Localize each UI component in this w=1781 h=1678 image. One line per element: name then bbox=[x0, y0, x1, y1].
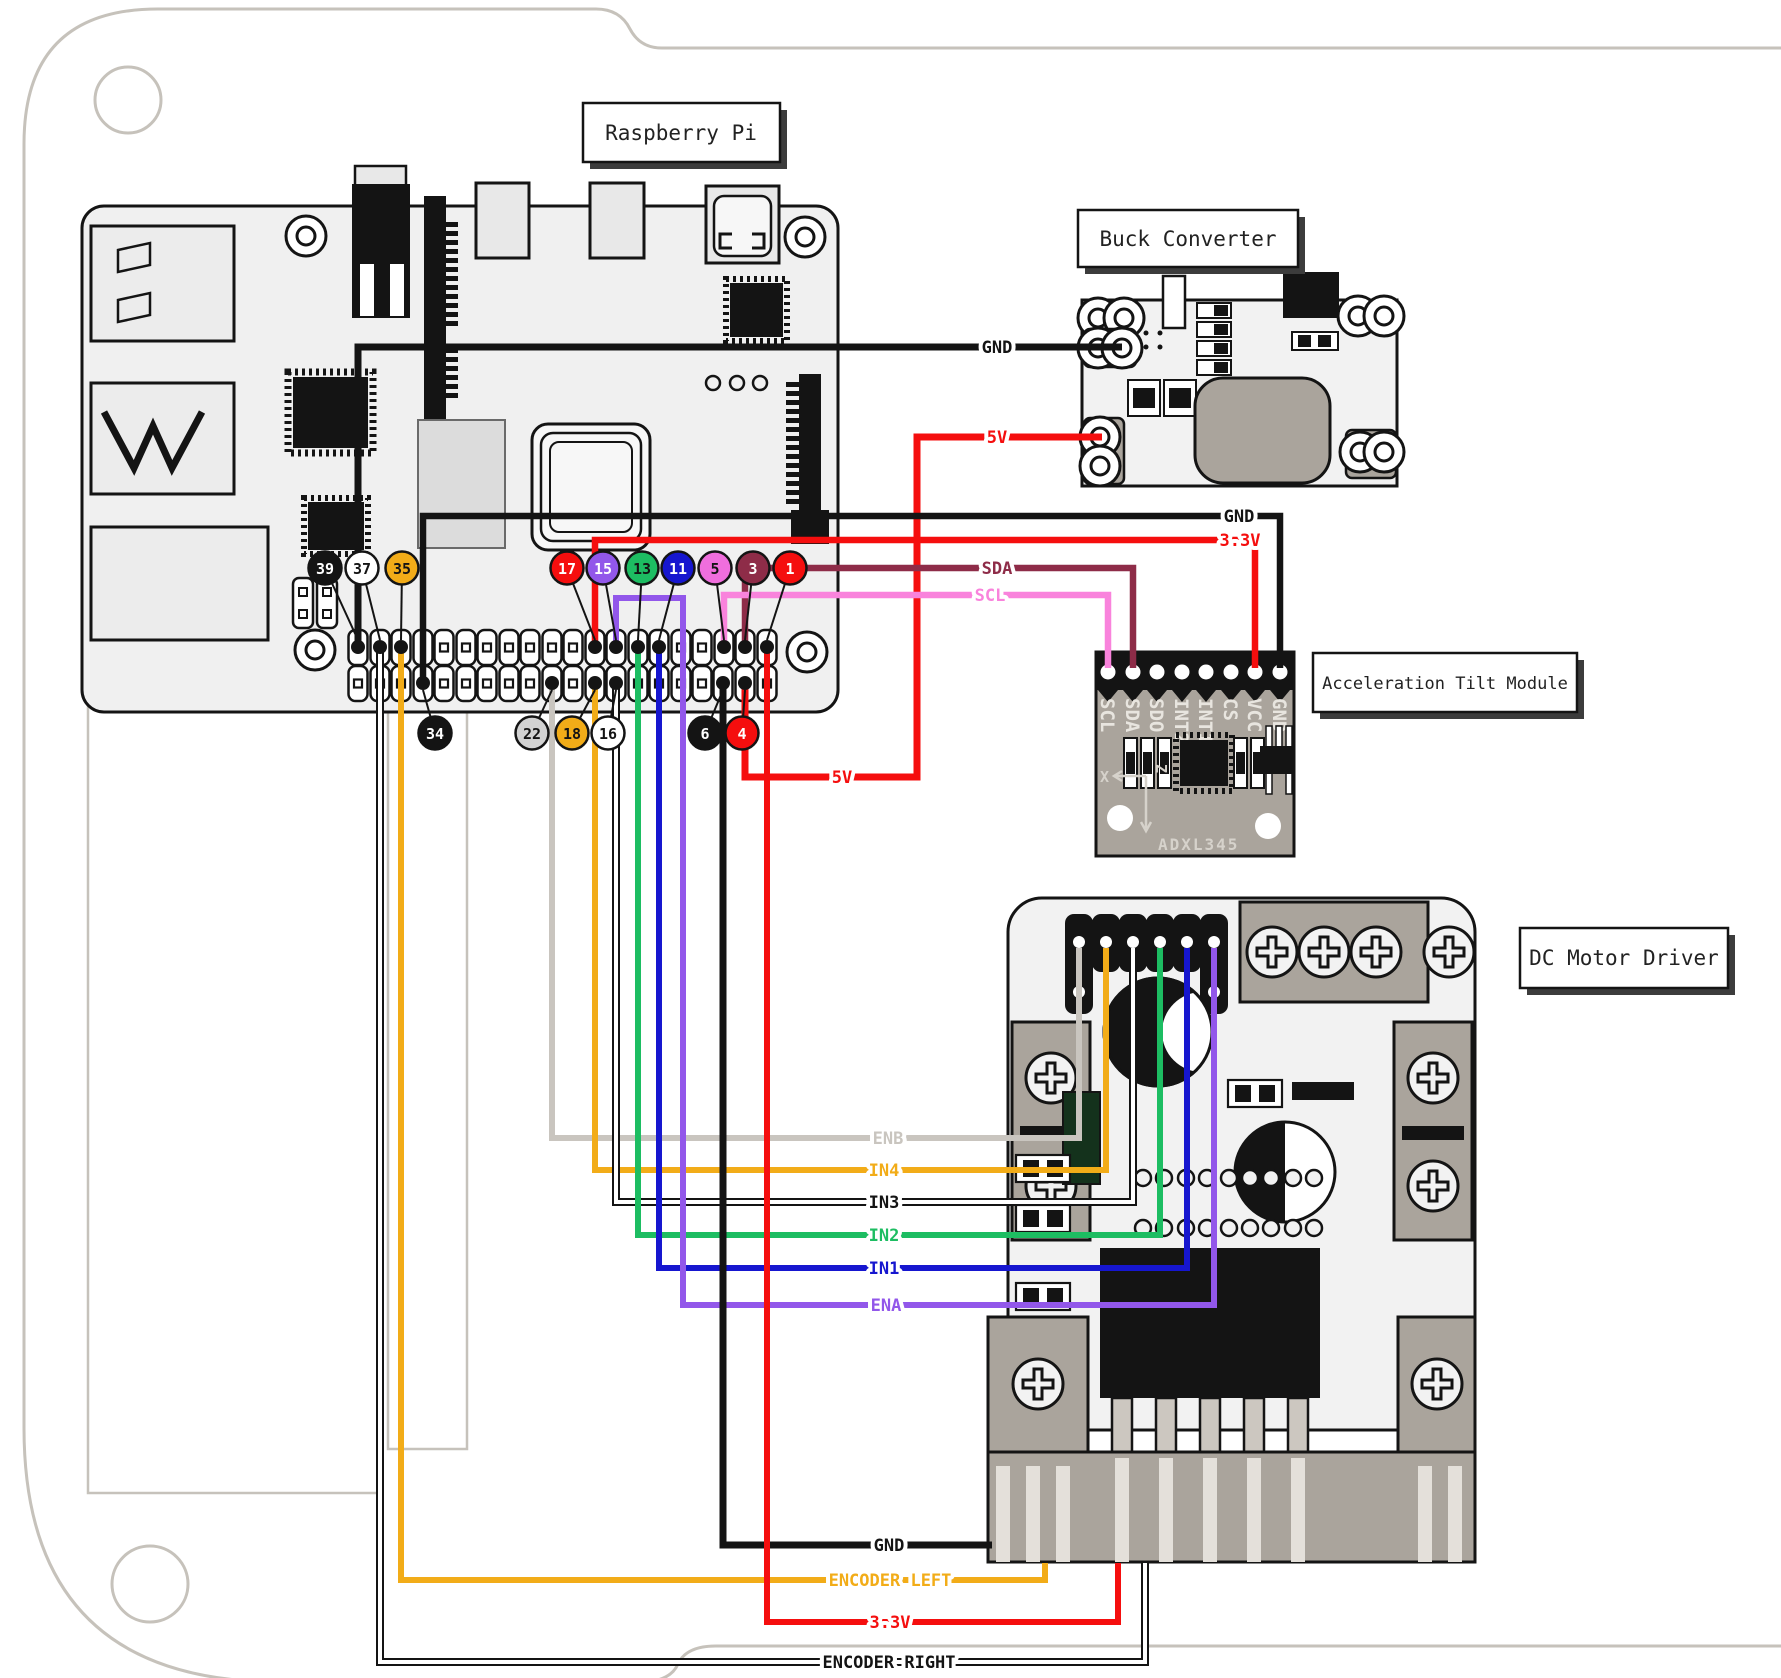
svg-text:39: 39 bbox=[316, 560, 334, 578]
wiring-diagram: SCL SDA SDO INT2 INT1 CS VCC GND bbox=[0, 0, 1781, 1678]
pin-circle-5: 5 bbox=[699, 552, 732, 585]
title-raspberry-pi: Raspberry Pi bbox=[605, 121, 757, 145]
tilt-pin-label: INT2 bbox=[1170, 698, 1192, 744]
buck-converter-board bbox=[1078, 272, 1404, 486]
chip bbox=[726, 279, 787, 341]
slot bbox=[1163, 276, 1185, 328]
wire-label-3v3-tilt: 3.3V bbox=[1220, 531, 1261, 551]
pin-circle-11: 11 bbox=[662, 552, 695, 585]
ethernet-port bbox=[91, 527, 268, 640]
memory-chip bbox=[418, 420, 505, 548]
svg-text:18: 18 bbox=[563, 725, 581, 743]
pin-circle-13: 13 bbox=[626, 552, 659, 585]
wire-label-ena: ENA bbox=[871, 1296, 902, 1316]
screw-icon bbox=[1247, 927, 1297, 977]
title-box-raspberry-pi: Raspberry Pi bbox=[583, 103, 787, 169]
screw-icon bbox=[1013, 1359, 1063, 1409]
tilt-module-board: SCL SDA SDO INT2 INT1 CS VCC GND bbox=[1096, 652, 1294, 856]
axis-z-label: Z bbox=[1152, 764, 1170, 773]
svg-text:11: 11 bbox=[669, 560, 687, 578]
svg-text:15: 15 bbox=[594, 560, 612, 578]
pi-mount-hole bbox=[787, 632, 827, 672]
tilt-pin-label: CS bbox=[1219, 698, 1241, 721]
svg-text:37: 37 bbox=[353, 560, 371, 578]
tilt-pin-label: VCC bbox=[1243, 698, 1265, 732]
hdmi-port-1 bbox=[590, 183, 644, 258]
chassis-cutout-1 bbox=[88, 655, 380, 1493]
tilt-hole bbox=[1107, 805, 1133, 831]
wire-label-in3: IN3 bbox=[869, 1193, 900, 1213]
usb-port-top bbox=[91, 226, 234, 341]
svg-text:22: 22 bbox=[523, 725, 541, 743]
usb-port-bottom bbox=[91, 383, 234, 494]
svg-text:5: 5 bbox=[710, 560, 719, 578]
hdmi-port-0 bbox=[476, 183, 529, 258]
wire-label-encoder-right: ENCODER RIGHT bbox=[822, 1653, 955, 1673]
pin-circle-4: 4 bbox=[726, 717, 759, 750]
wire-label-encoder-left: ENCODER LEFT bbox=[829, 1571, 952, 1591]
wire-label-gnd-driver: GND bbox=[874, 1536, 905, 1556]
inductor bbox=[1195, 378, 1330, 483]
pin-circle-35: 35 bbox=[386, 552, 419, 585]
tilt-pin-label: SDA bbox=[1121, 698, 1143, 733]
screw-icon bbox=[1408, 1161, 1458, 1211]
wire-enb bbox=[552, 683, 1079, 1138]
svg-text:35: 35 bbox=[393, 560, 411, 578]
chassis-hole-bottom bbox=[112, 1546, 188, 1622]
title-box-tilt-module: Acceleration Tilt Module bbox=[1313, 653, 1584, 719]
axis-x-label: X bbox=[1100, 768, 1109, 786]
pin-circle-17: 17 bbox=[551, 552, 584, 585]
svg-text:34: 34 bbox=[426, 725, 444, 743]
wire-label-in2: IN2 bbox=[869, 1226, 900, 1246]
wire-label-gnd-buck: GND bbox=[982, 338, 1013, 358]
buck-ic bbox=[1283, 272, 1339, 318]
adxl345-chip bbox=[1176, 735, 1232, 791]
screw-icon bbox=[1408, 1053, 1458, 1103]
pin-circle-6: 6 bbox=[689, 717, 722, 750]
pin-circle-1: 1 bbox=[774, 552, 807, 585]
adxl345-label: ADXL345 bbox=[1158, 835, 1239, 854]
pin-circle-34: 34 bbox=[419, 717, 452, 750]
usb-c-port bbox=[706, 186, 779, 263]
title-motor-driver: DC Motor Driver bbox=[1529, 946, 1719, 970]
screw-icon bbox=[1424, 927, 1474, 977]
wire-label-scl: SCL bbox=[975, 586, 1006, 606]
pin-circle-16: 16 bbox=[592, 717, 625, 750]
title-box-motor-driver: DC Motor Driver bbox=[1520, 928, 1735, 995]
wire-label-5v-a: 5V bbox=[987, 428, 1007, 448]
title-buck-converter: Buck Converter bbox=[1099, 227, 1276, 251]
tilt-pin-label: SCL bbox=[1096, 698, 1118, 732]
screw-icon bbox=[1412, 1359, 1462, 1409]
soc-chip bbox=[532, 424, 650, 550]
wire-label-gnd-tilt: GND bbox=[1224, 507, 1255, 527]
pin-circle-37: 37 bbox=[346, 552, 379, 585]
motor-driver-board bbox=[988, 898, 1475, 1562]
svg-text:13: 13 bbox=[633, 560, 651, 578]
tilt-pin-label: SDO bbox=[1145, 698, 1167, 732]
svg-text:3: 3 bbox=[748, 560, 757, 578]
pin-circle-3: 3 bbox=[737, 552, 770, 585]
wire-label-in4: IN4 bbox=[869, 1161, 900, 1181]
wire-label-sda: SDA bbox=[982, 559, 1013, 579]
title-tilt-module: Acceleration Tilt Module bbox=[1322, 674, 1568, 694]
pin-circle-15: 15 bbox=[587, 552, 620, 585]
svg-text:6: 6 bbox=[700, 725, 709, 743]
svg-text:1: 1 bbox=[785, 560, 794, 578]
svg-text:4: 4 bbox=[737, 725, 746, 743]
tilt-hole bbox=[1255, 813, 1281, 839]
pin-circle-18: 18 bbox=[556, 717, 589, 750]
wire-label-5v-b: 5V bbox=[832, 768, 852, 788]
wire-gnd-driver bbox=[723, 683, 992, 1545]
svg-text:16: 16 bbox=[599, 725, 617, 743]
pi-mount-hole bbox=[286, 216, 326, 256]
chassis-hole-top bbox=[95, 67, 161, 133]
title-box-buck-converter: Buck Converter bbox=[1078, 210, 1305, 274]
wire-label-3v3-driver: 3.3V bbox=[870, 1613, 911, 1633]
pi-mount-hole bbox=[295, 630, 335, 670]
screw-icon bbox=[1351, 927, 1401, 977]
pi-mount-hole bbox=[785, 217, 825, 257]
svg-text:17: 17 bbox=[558, 560, 576, 578]
pin-circle-39: 39 bbox=[309, 552, 342, 585]
screw-icon bbox=[1299, 927, 1349, 977]
wire-label-enb: ENB bbox=[873, 1129, 904, 1149]
wire-label-in1: IN1 bbox=[869, 1259, 900, 1279]
pin-circle-22: 22 bbox=[516, 717, 549, 750]
